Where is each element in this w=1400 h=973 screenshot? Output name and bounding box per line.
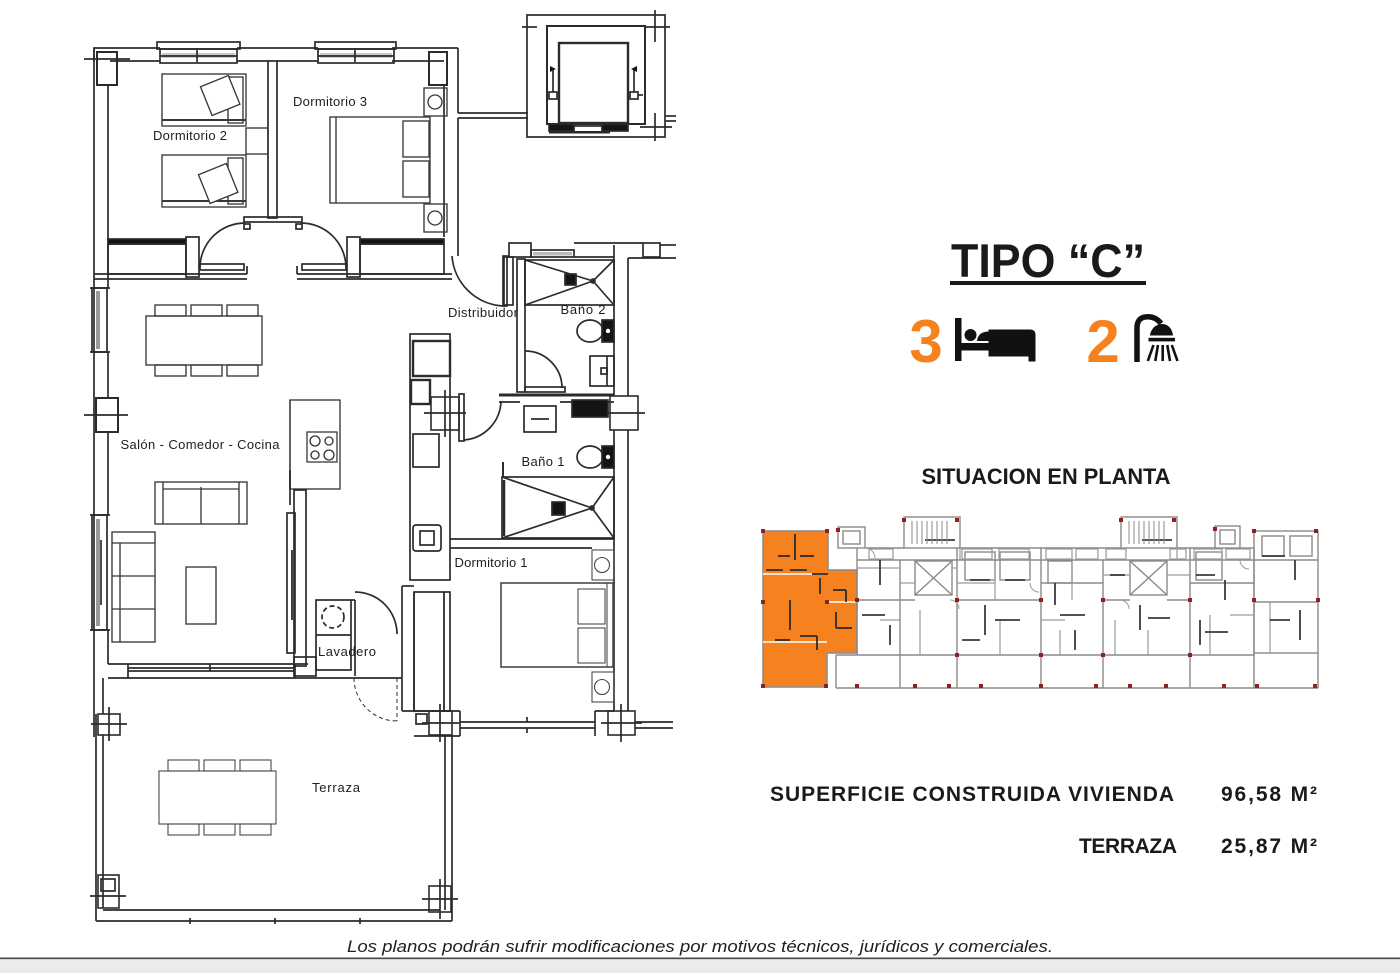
svg-text:Distribuidor: Distribuidor: [448, 305, 519, 320]
svg-text:25,87 M²: 25,87 M²: [1221, 835, 1317, 858]
svg-text:Lavadero: Lavadero: [318, 644, 376, 659]
svg-text:96,58 M²: 96,58 M²: [1221, 783, 1317, 806]
svg-text:Terraza: Terraza: [312, 780, 361, 795]
svg-text:2: 2: [1086, 308, 1119, 375]
svg-text:Dormitorio 2: Dormitorio 2: [153, 128, 227, 143]
svg-text:3: 3: [909, 308, 942, 375]
svg-text:Los planos podrán sufrir modif: Los planos podrán sufrir modificaciones …: [347, 937, 1053, 956]
svg-text:Baño 2: Baño 2: [561, 302, 606, 317]
svg-text:Dormitorio 3: Dormitorio 3: [293, 94, 367, 109]
svg-text:Baño 1: Baño 1: [522, 454, 565, 469]
svg-text:TIPO “C”: TIPO “C”: [951, 234, 1145, 287]
svg-text:SUPERFICIE CONSTRUIDA VIVIENDA: SUPERFICIE CONSTRUIDA VIVIENDA: [770, 783, 1174, 806]
svg-text:Salón - Comedor - Cocina: Salón - Comedor - Cocina: [121, 437, 281, 452]
svg-text:Dormitorio 1: Dormitorio 1: [455, 555, 528, 570]
svg-text:TERRAZA: TERRAZA: [1079, 835, 1177, 858]
svg-text:SITUACION EN PLANTA: SITUACION EN PLANTA: [922, 464, 1171, 489]
